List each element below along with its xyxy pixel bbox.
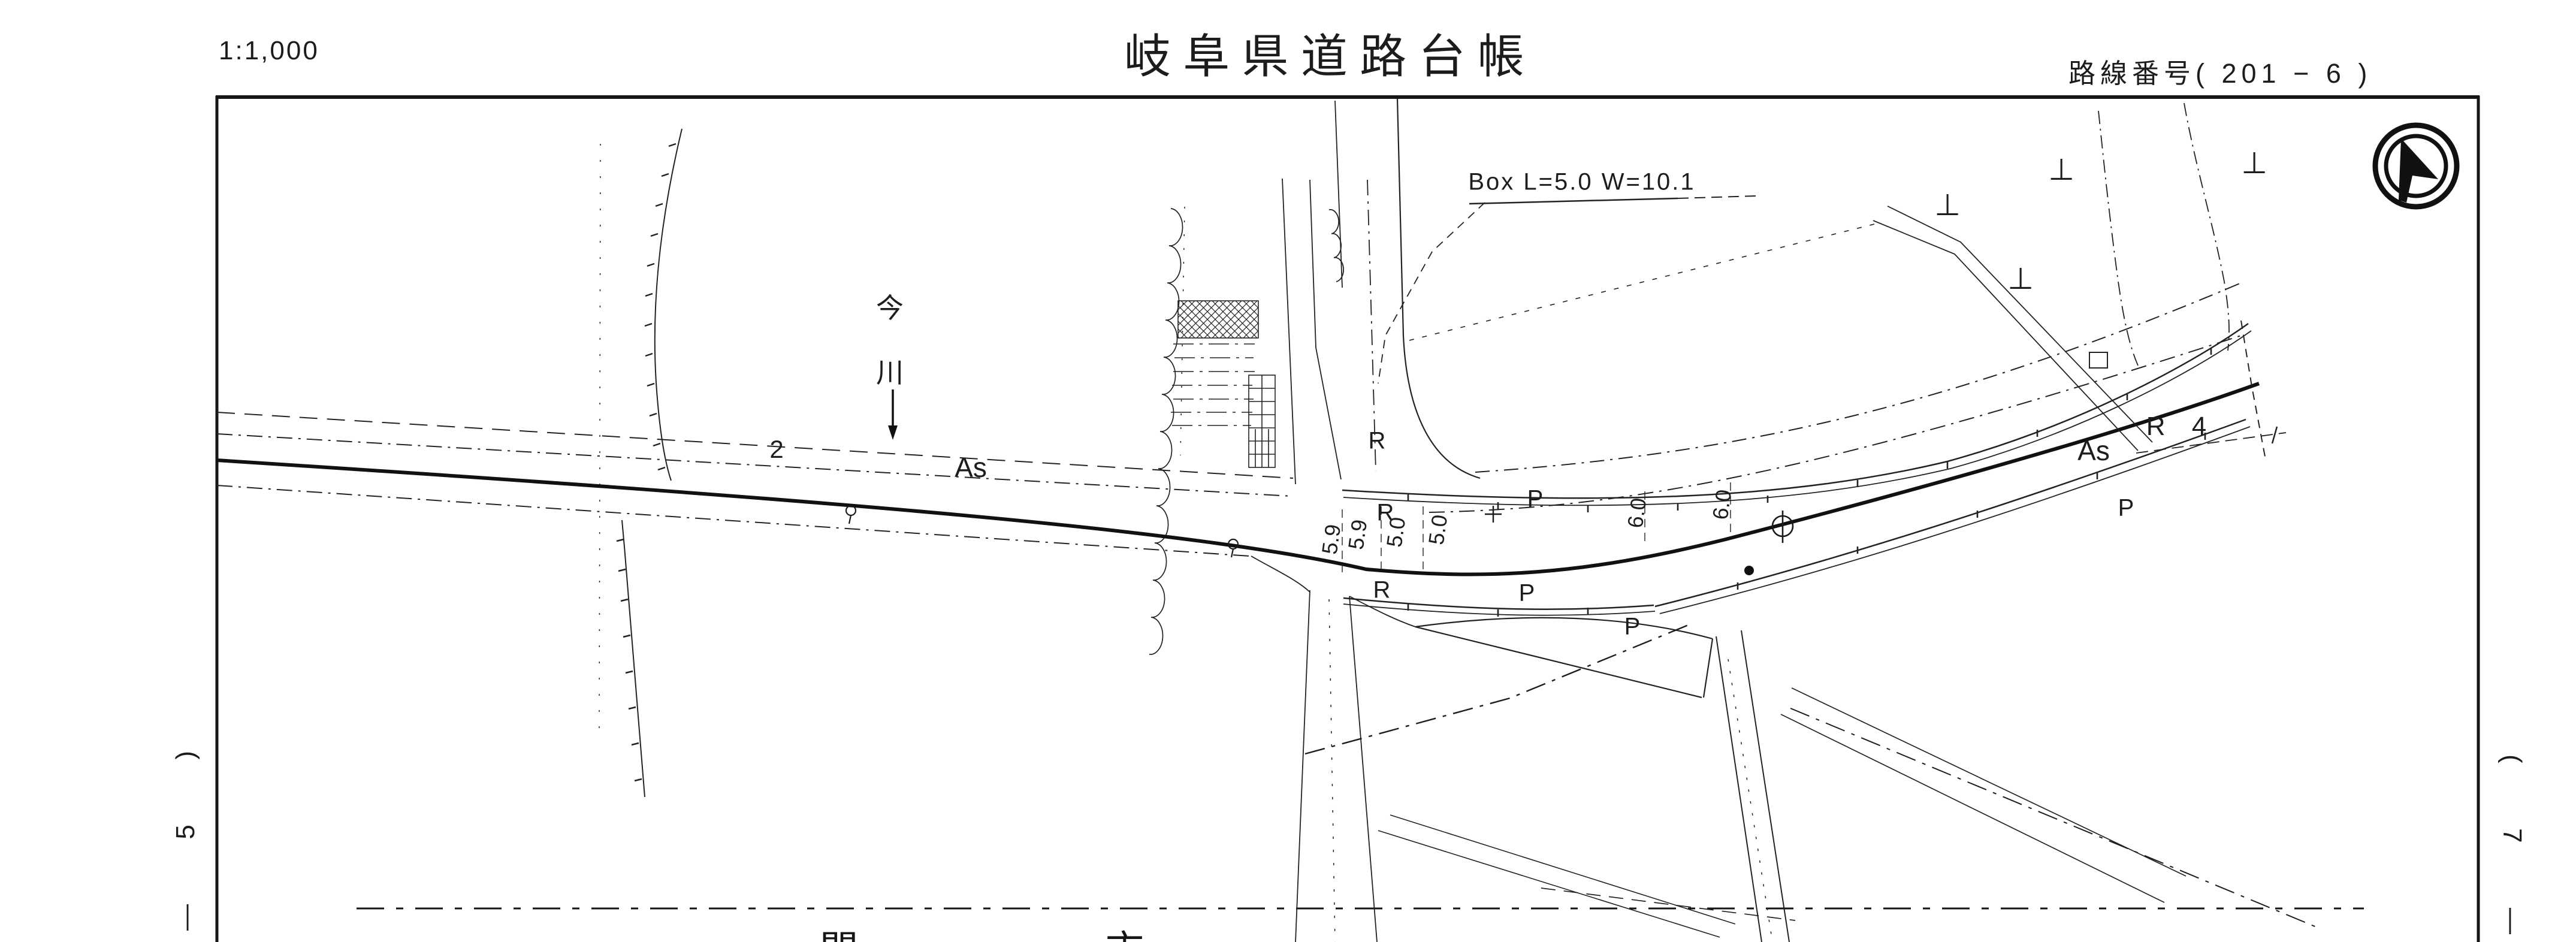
pole-icon: ⊥ bbox=[2007, 261, 2034, 296]
left-sheet-connector-label: — 5 ) bbox=[172, 751, 200, 931]
connector-char: 5 bbox=[171, 825, 201, 839]
river-name-label: 今 川 bbox=[876, 286, 904, 391]
map-linework bbox=[0, 0, 2576, 942]
flow-direction-arrow-icon bbox=[881, 384, 905, 443]
right-sheet-connector-label: ( 7 — bbox=[2498, 754, 2526, 934]
guardrail-mark: P bbox=[1519, 580, 1535, 607]
south-roads bbox=[1251, 556, 2186, 942]
survey-cross-marker bbox=[1485, 506, 1502, 523]
rail-mark: R bbox=[1373, 577, 1391, 604]
road-ledger-sheet: 1:1,000 岐阜県道路台帳 路線番号( 201 − 6 ) bbox=[0, 0, 2576, 942]
tree-line bbox=[1149, 207, 1185, 654]
guardrail-mark: P bbox=[1624, 614, 1641, 641]
pole-icon: ⊥ bbox=[1934, 188, 1961, 222]
connector-char: 7 bbox=[2497, 828, 2527, 843]
box-note-leader bbox=[1378, 196, 1874, 384]
width-value-label: 5.0 bbox=[1382, 515, 1411, 548]
boundary-line bbox=[1305, 624, 2318, 928]
bottom-city-char-right: 市 bbox=[1106, 919, 1144, 942]
width-value-label: 6.0 bbox=[1708, 488, 1737, 521]
pole-icon: ⊥ bbox=[2048, 152, 2074, 187]
pole-icon: ⊥ bbox=[2241, 146, 2267, 180]
width-value-label: 6.0 bbox=[1623, 496, 1652, 529]
width-value-label: 5.9 bbox=[1343, 518, 1373, 551]
lane-number-label: 2 bbox=[769, 435, 783, 464]
connector-char: — bbox=[2497, 908, 2527, 934]
connector-char: ) bbox=[171, 751, 201, 760]
connector-char: — bbox=[171, 904, 201, 931]
east-road bbox=[1342, 282, 2286, 617]
pavement-label-east: As bbox=[2077, 434, 2110, 467]
curve-radius-label: R 4 bbox=[2146, 412, 2216, 442]
width-value-label: 5.0 bbox=[1424, 513, 1453, 546]
river-char-1: 今 bbox=[876, 286, 904, 326]
connector-char: ( bbox=[2497, 754, 2527, 763]
rail-mark: R bbox=[1369, 428, 1386, 455]
river-bank-line bbox=[599, 129, 682, 797]
north-arrow-icon bbox=[2375, 125, 2457, 207]
guardrail-mark: P bbox=[2118, 495, 2134, 522]
pavement-label-west: As bbox=[955, 451, 987, 484]
box-dimension-note: Box L=5.0 W=10.1 bbox=[1468, 169, 1695, 196]
width-value-label: 5.9 bbox=[1317, 523, 1346, 555]
bottom-city-char-left: 関 bbox=[820, 919, 858, 942]
guardrail-mark: P bbox=[1527, 486, 1544, 513]
north-leg-street bbox=[1282, 99, 1480, 484]
